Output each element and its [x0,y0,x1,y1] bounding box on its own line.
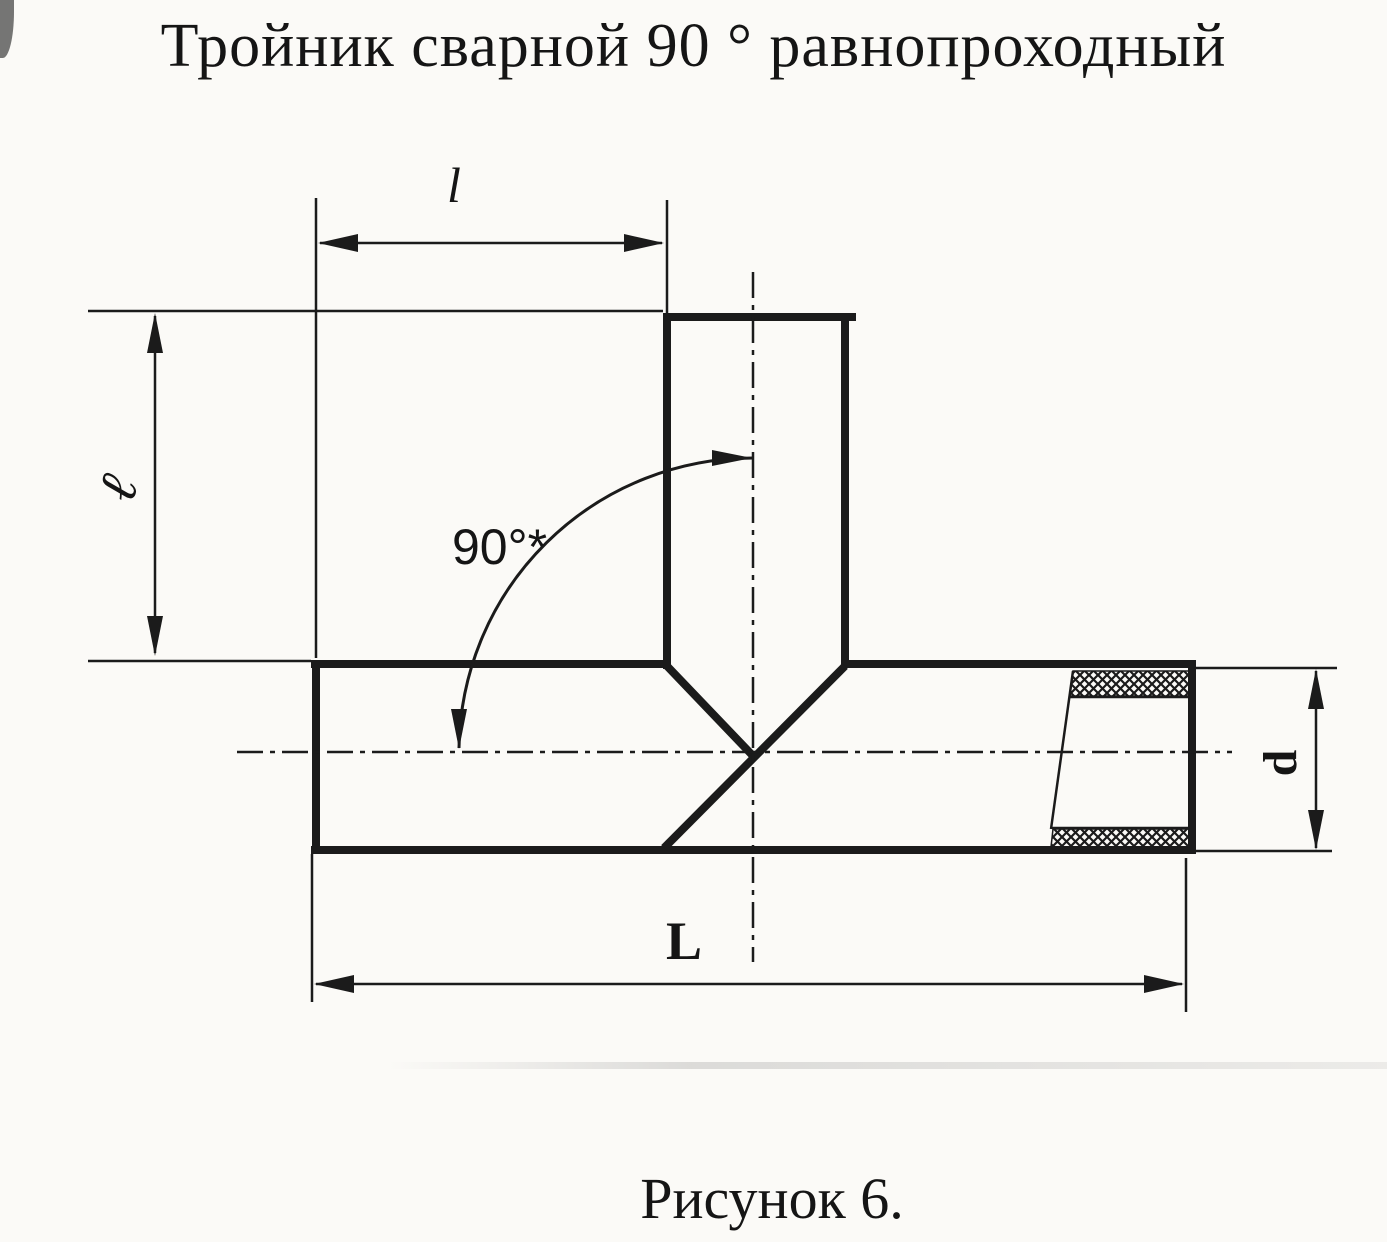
wall-section-hatch-top [1070,671,1189,696]
d-arrow-bottom [1308,810,1324,850]
dimension-ell [88,311,663,661]
branch-length-label: l [447,156,461,214]
drawing-sheet: Тройник сварной 90 ° равнопроходный [0,0,1387,1242]
wall-section-hatch-bottom [1051,829,1189,847]
branch-pipe-outline [663,313,856,669]
wall-section-cut-line [1051,671,1073,829]
ell-arrow-bottom [147,616,163,656]
centerlines [237,272,1232,962]
d-arrow-top [1308,669,1324,709]
dimension-L [312,854,1186,1012]
ell-arrow-top [147,313,163,353]
dimension-l [316,198,667,658]
diameter-label: d [1248,731,1312,795]
angle-arrow-top [712,450,752,466]
angle-label: 90°* [452,518,547,576]
L-arrow-left [314,975,354,993]
l-arrow-right [624,234,664,252]
scan-artifact-streak [388,1062,1387,1069]
tee-fitting-drawing [0,0,1387,1242]
figure-caption: Рисунок 6. [640,1164,904,1234]
l-arrow-left [318,234,358,252]
overall-length-label: L [666,910,702,972]
wall-section [1051,671,1190,847]
weld-seam-left-bevel [667,666,755,758]
weld-joint-lines [664,666,845,848]
L-arrow-right [1144,975,1184,993]
angle-arrow-bottom [451,709,467,749]
